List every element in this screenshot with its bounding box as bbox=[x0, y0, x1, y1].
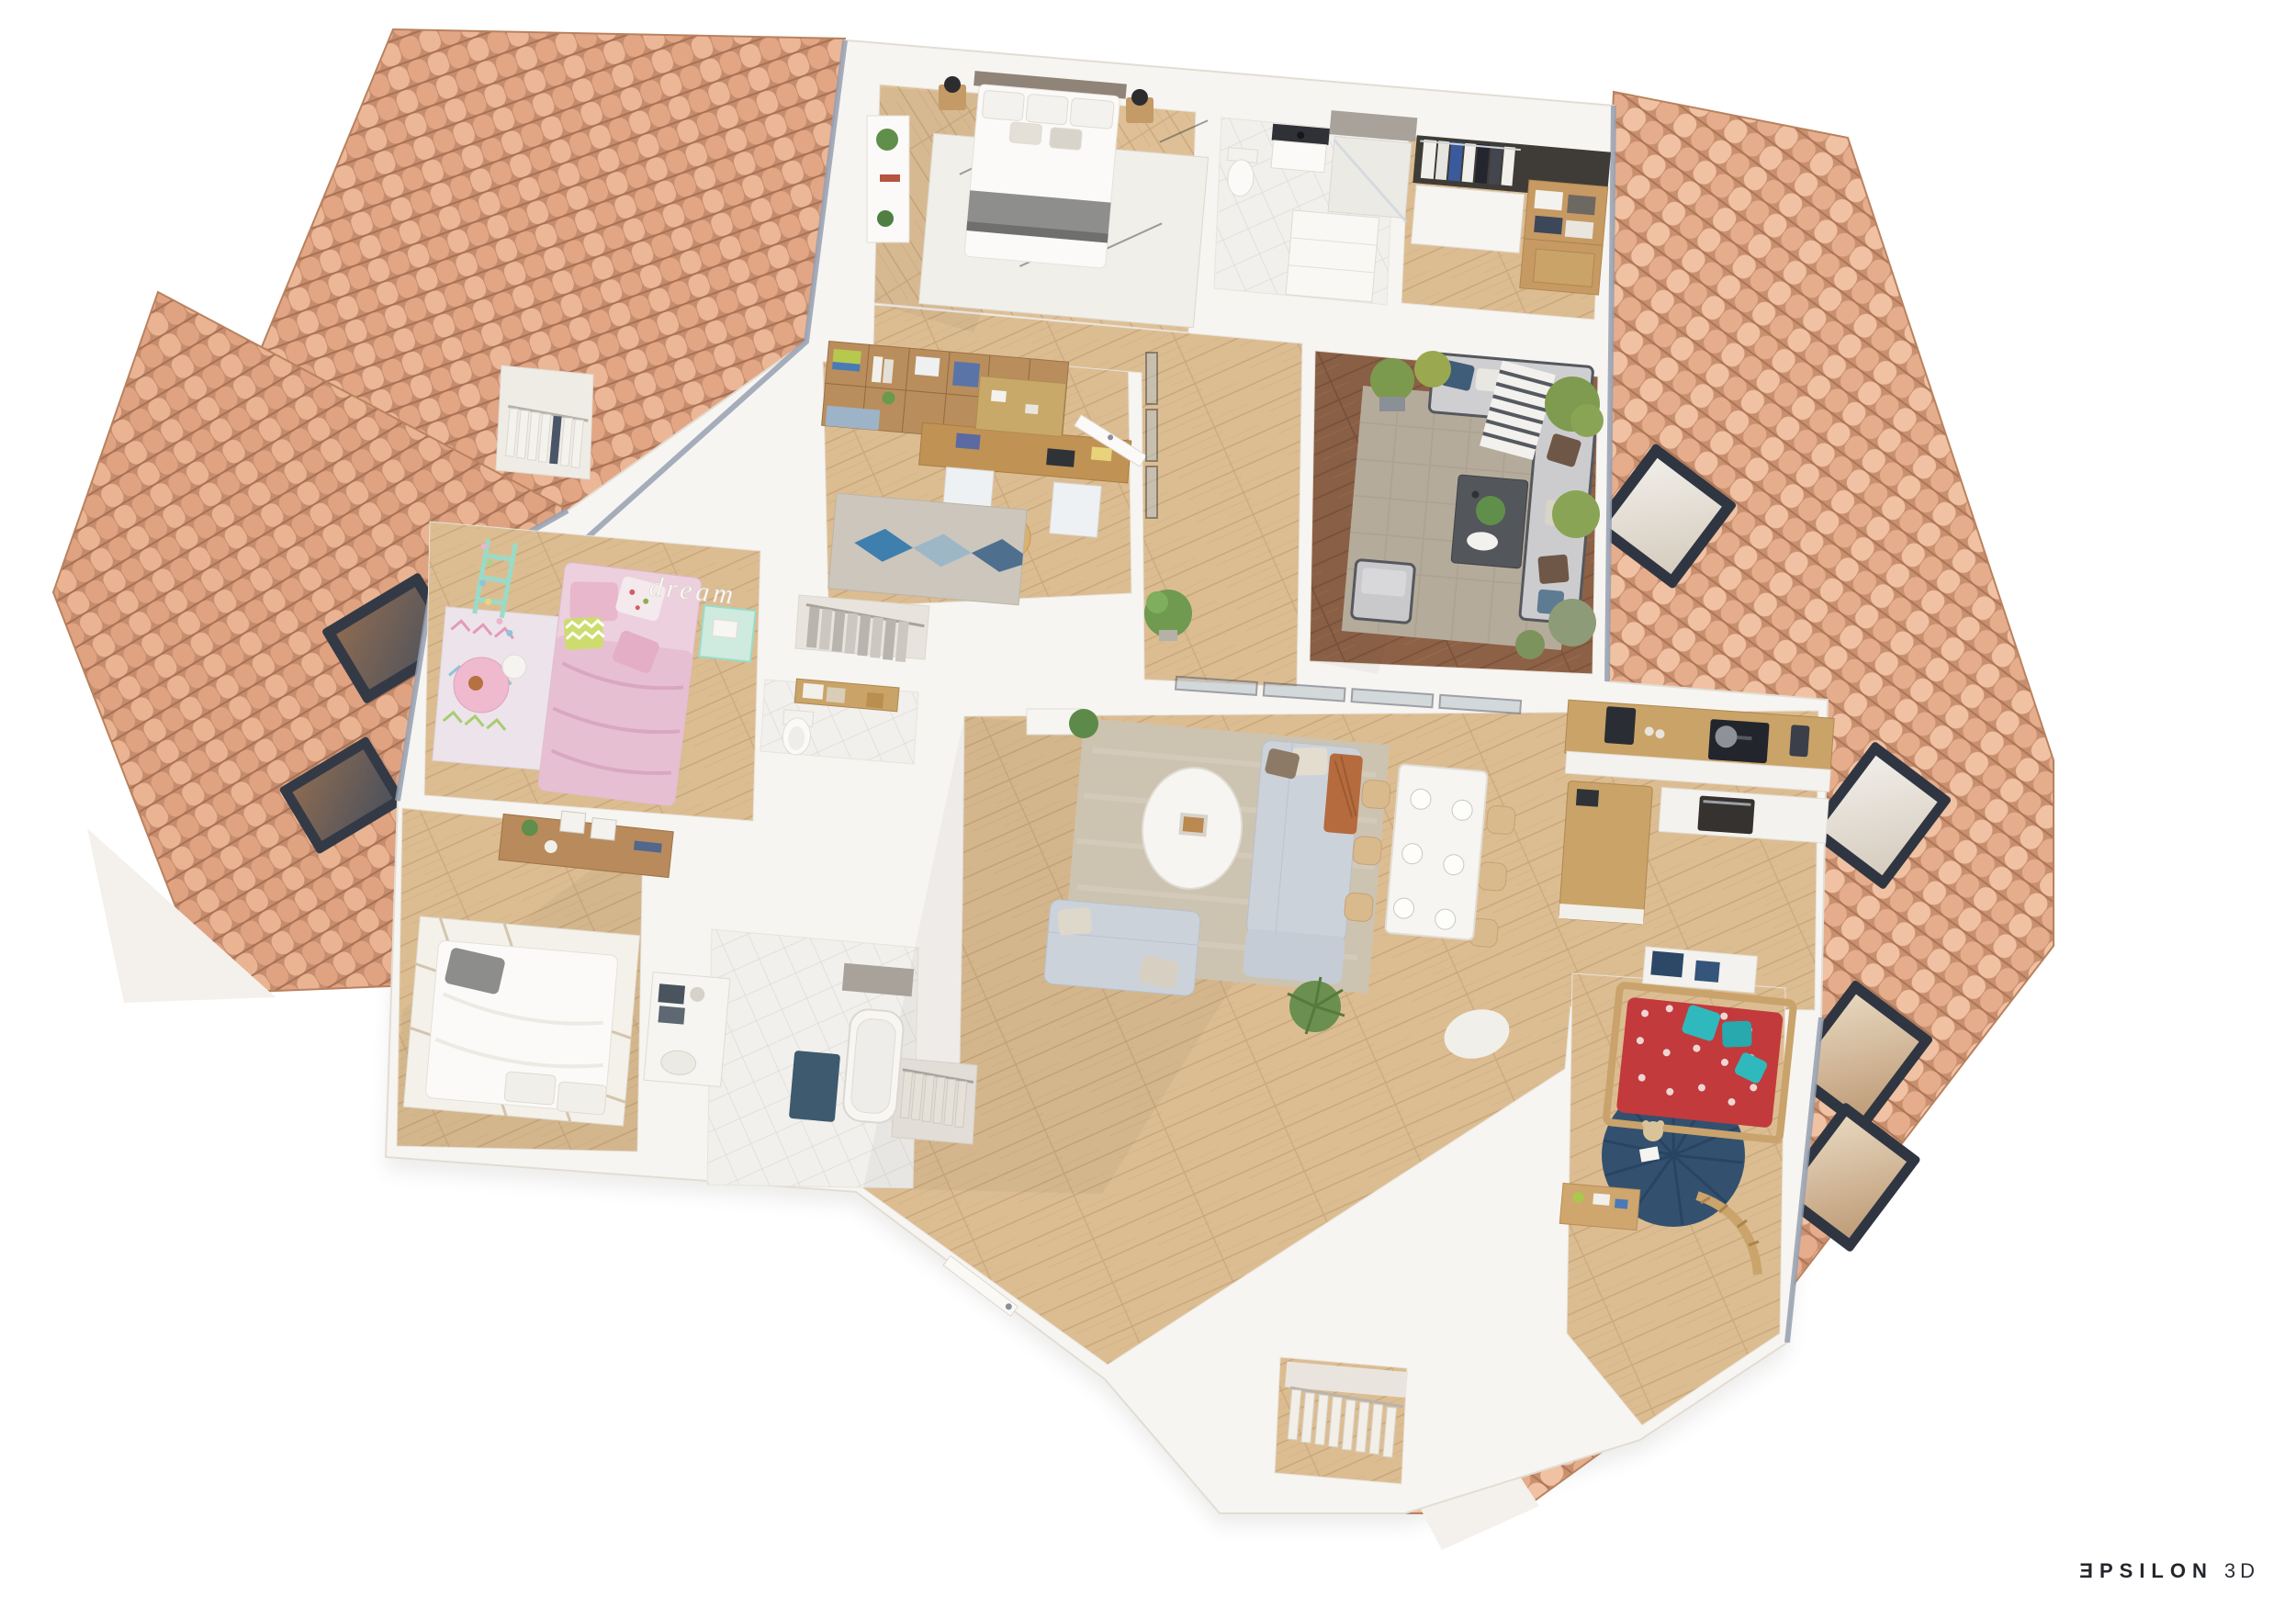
induction-hob bbox=[1708, 719, 1770, 763]
pillow-pink bbox=[569, 581, 618, 621]
watermark-epsilon-reversed-e: Ǝ bbox=[2079, 1559, 2099, 1582]
towel-gray bbox=[658, 1006, 684, 1024]
master-bed bbox=[959, 71, 1127, 269]
watermark-brand: PSILON bbox=[2099, 1559, 2213, 1582]
pillow-chevron bbox=[564, 617, 605, 650]
storage-box bbox=[826, 687, 845, 703]
blender bbox=[1789, 725, 1809, 757]
bathtub bbox=[842, 1008, 905, 1125]
bathroom-vanity bbox=[1269, 124, 1330, 173]
floorplan-render-page: dream bbox=[0, 0, 2296, 1607]
picture-frame bbox=[560, 811, 586, 834]
towel-dark bbox=[658, 983, 685, 1004]
cushion-beige bbox=[1057, 907, 1092, 936]
kitchen-island bbox=[1559, 781, 1652, 924]
master-sideboard bbox=[867, 116, 909, 242]
watermark-suffix: 3D bbox=[2224, 1559, 2259, 1582]
office-rug bbox=[828, 493, 1027, 605]
plant-icon bbox=[1069, 709, 1098, 738]
white-pillow bbox=[504, 1072, 557, 1106]
storage-box bbox=[803, 683, 824, 700]
living-console bbox=[1027, 709, 1098, 738]
bathroom2-vanity bbox=[644, 972, 730, 1087]
drawer-unit bbox=[1286, 210, 1379, 302]
sliding-door bbox=[1412, 185, 1525, 253]
glass-balustrade bbox=[1146, 353, 1157, 518]
lamp-icon bbox=[944, 76, 961, 93]
sofa-small bbox=[1043, 899, 1200, 996]
watermark: ƎPSILON3D bbox=[2079, 1559, 2259, 1583]
picture-frame bbox=[591, 818, 616, 841]
coffee-machine bbox=[1604, 706, 1637, 745]
floorplan-3d-scene: dream bbox=[0, 0, 2296, 1607]
toy-icon bbox=[468, 676, 483, 691]
closet-shelves bbox=[1520, 180, 1608, 295]
lamp-icon bbox=[1131, 89, 1148, 106]
plant-icon bbox=[876, 129, 898, 151]
bed-white bbox=[425, 940, 618, 1115]
teal-pillow bbox=[1722, 1021, 1752, 1048]
cushion-brown bbox=[1537, 555, 1569, 585]
plant-icon bbox=[877, 210, 894, 227]
mint-desk bbox=[699, 605, 756, 662]
desk-drawers bbox=[1050, 482, 1102, 537]
terrace-lounge bbox=[1342, 351, 1604, 659]
navy-bath-mat bbox=[789, 1051, 840, 1122]
storage-box bbox=[866, 692, 884, 709]
toy-desk bbox=[1559, 1183, 1640, 1230]
white-pillow bbox=[557, 1082, 607, 1115]
terrace-coffee-table bbox=[1451, 475, 1528, 568]
cork-pinboard bbox=[975, 376, 1066, 437]
kids-chair bbox=[502, 655, 526, 679]
outdoor-armchair bbox=[1351, 559, 1414, 623]
